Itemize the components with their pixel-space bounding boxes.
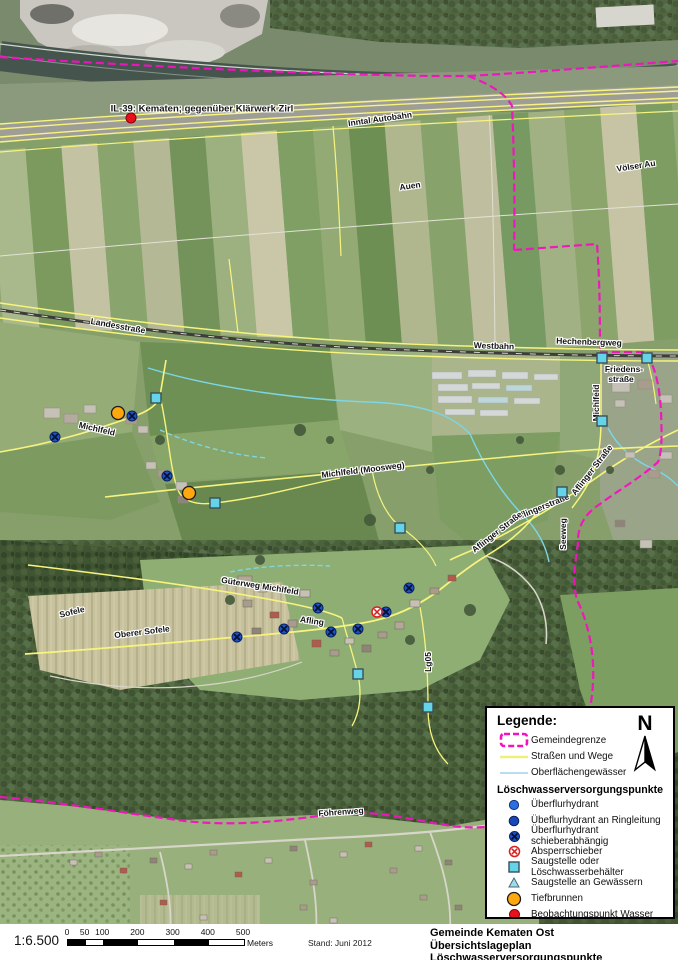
scale-tick-label: 0 [65, 927, 70, 937]
legend-item-label: Oberflächengewässer [531, 767, 626, 778]
legend-panel: Legende: GemeindegrenzeStraßen und WegeO… [485, 706, 675, 919]
scale-bar [67, 939, 245, 946]
north-label: N [627, 714, 663, 734]
legend-item-label: Beobachtungspunkt Wasser [531, 909, 653, 919]
scale-segment [174, 940, 209, 945]
north-arrow-icon [633, 734, 657, 774]
legend-item-label: Saugstelle an Gewässern [531, 877, 643, 888]
scale-segment [209, 940, 244, 945]
legend-item-label: Gemeindegrenze [531, 735, 606, 746]
well-icon [497, 891, 531, 907]
water-swatch-icon [497, 765, 531, 781]
scale-tick-label: 400 [201, 927, 215, 937]
obs-icon [497, 908, 531, 919]
valve-icon [497, 845, 531, 858]
footer-bar: 1:6.500 050100200300400500 Meters Stand:… [0, 924, 678, 960]
scale-segment [86, 940, 104, 945]
map-title-line1: Gemeinde Kematen Ost [430, 927, 678, 940]
scale-tick-label: 300 [166, 927, 180, 937]
scale-ratio: 1:6.500 [14, 933, 59, 948]
suction-tri-icon [497, 877, 531, 888]
scale-unit: Meters [247, 938, 273, 948]
legend-item-label: Tiefbrunnen [531, 893, 583, 904]
hydrant-valve-icon [497, 830, 531, 843]
scale-tick-label: 200 [130, 927, 144, 937]
road-swatch-icon [497, 749, 531, 765]
suction-icon [497, 861, 531, 873]
legend-item-label: Saugstelle oder Löschwasserbehälter [531, 856, 673, 878]
map-title-line2: Übersichtslageplan Löschwasserversorgung… [430, 940, 678, 960]
boundary-swatch-icon [497, 732, 531, 748]
legend-point-items: ÜberflurhydrantÜbeflurhydrant an Ringlei… [497, 797, 673, 919]
north-arrow: N [627, 714, 663, 779]
legend-item: Beobachtungspunkt Wasser [497, 906, 673, 919]
scale-tick-label: 100 [95, 927, 109, 937]
legend-item: Überflurhydrant schieberabhängig [497, 828, 673, 844]
map-sheet: IL-39: Kematen; gegenüber Klärwerk ZirlI… [0, 0, 678, 960]
scale-segment [138, 940, 173, 945]
scale-tick-label: 50 [80, 927, 89, 937]
hydrant-ring-icon [497, 815, 531, 827]
map-title: Gemeinde Kematen Ost Übersichtslageplan … [430, 927, 678, 960]
hydrant-icon [497, 799, 531, 811]
scale-tick-label: 500 [236, 927, 250, 937]
legend-item-label: Überflurhydrant schieberabhängig [531, 825, 673, 847]
legend-item: Überflurhydrant [497, 797, 673, 813]
legend-item-label: Überflurhydrant [531, 799, 599, 810]
scale-segment [68, 940, 86, 945]
legend-item-label: Straßen und Wege [531, 751, 613, 762]
map-date: Stand: Juni 2012 [308, 938, 372, 948]
legend-points-header: Löschwasserversorgungspunkte [497, 784, 673, 796]
scale-segment [103, 940, 138, 945]
legend-item: Tiefbrunnen [497, 891, 673, 907]
legend-item: Saugstelle oder Löschwasserbehälter [497, 860, 673, 876]
